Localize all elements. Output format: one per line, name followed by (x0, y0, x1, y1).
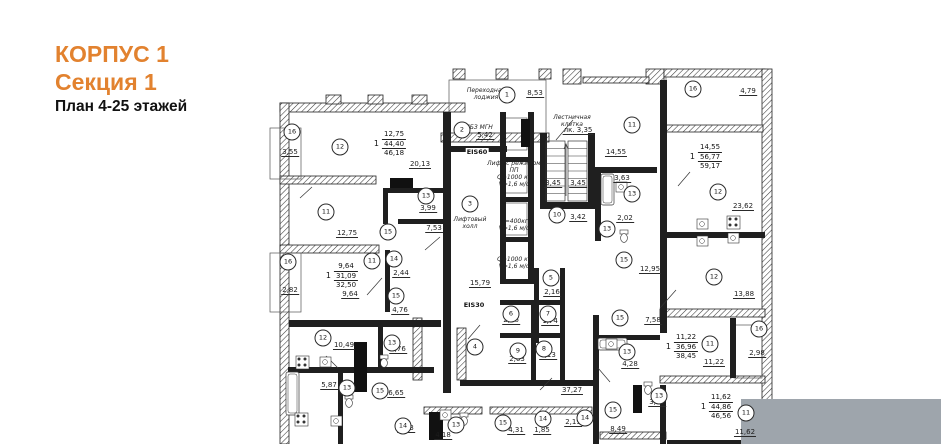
apartment-rooms-count: 1 (690, 152, 695, 161)
stove-burner (297, 415, 300, 418)
dimension-label: 13,88 (733, 290, 755, 299)
apartment-area-value: 11,62 (709, 393, 733, 403)
apartment-area-value: 38,45 (674, 352, 698, 361)
shaft-block (354, 342, 367, 392)
room-marker: 2 (454, 122, 471, 139)
exterior-wall (762, 69, 772, 444)
apartment-area-value: 46,18 (382, 149, 406, 158)
dimension-label: 37,27 (561, 386, 583, 395)
sink-icon (728, 233, 739, 243)
apartment-area-value: 14,55 (698, 143, 722, 153)
dimension-label: 7,53 (425, 224, 443, 233)
sink-icon (697, 236, 708, 246)
stove-burner (735, 224, 738, 227)
room-marker: 13 (624, 186, 641, 203)
apartment-area-value: 59,17 (698, 162, 722, 171)
dimension-label: 5,42 (476, 131, 494, 140)
room-marker: 13 (418, 188, 435, 205)
room-marker: 13 (651, 388, 668, 405)
gray-mask-overlay (741, 399, 941, 444)
sink-icon (331, 416, 342, 426)
exterior-wall (457, 328, 466, 380)
exterior-wall (660, 309, 765, 317)
apartment-area-value: 31,09 (334, 272, 358, 282)
stove-burner (303, 421, 306, 424)
room-marker: 6 (503, 306, 520, 323)
dimension-label: 11,22 (703, 358, 725, 367)
dimension-label: 3,45 (544, 179, 562, 188)
dimension-label: 8,49 (609, 425, 627, 434)
stove-burner (304, 358, 307, 361)
stove-burner (729, 218, 732, 221)
interior-wall (500, 279, 534, 284)
dimension-label: 4,79 (739, 87, 757, 96)
dimension-label: 12,75 (336, 229, 358, 238)
dimension-label: 2,82 (281, 286, 299, 295)
apartment-area-value: 44,86 (709, 403, 733, 413)
apartment-areas: 11,6244,8646,56 (709, 393, 733, 421)
exterior-wall (539, 69, 551, 79)
room-marker: 11 (702, 336, 719, 353)
apartment-area-stack: 111,6244,8646,56 (701, 393, 733, 421)
dimension-label: 3,55 (281, 148, 299, 157)
interior-wall (666, 232, 765, 238)
exterior-wall (664, 69, 765, 77)
apartment-areas: 12,7544,4046,18 (382, 130, 406, 158)
apartment-areas: 9,6431,0932,50 (334, 262, 358, 290)
apartment-area-stack: 19,6431,0932,50 (326, 262, 358, 290)
apartment-area-value: 12,75 (382, 130, 406, 140)
apartment-area-stack: 111,2236,9638,45 (666, 333, 698, 361)
dimension-label: 15,79 (469, 279, 491, 288)
room-marker: 3 (462, 196, 479, 213)
interior-wall (730, 318, 736, 378)
toilet-bowl (346, 399, 353, 408)
room-marker: 12 (315, 330, 332, 347)
interior-wall (383, 188, 388, 224)
dimension-label: 3,45 (569, 179, 587, 188)
apartment-areas: 14,5556,7759,17 (698, 143, 722, 171)
apartment-areas: 11,2236,9638,45 (674, 333, 698, 361)
interior-wall (593, 315, 599, 444)
room-marker: 11 (318, 204, 335, 221)
exterior-wall (496, 69, 508, 79)
room-marker: 15 (612, 310, 629, 327)
room-marker: 1 (499, 87, 516, 104)
room-marker: 16 (685, 81, 702, 98)
room-marker: 14 (386, 251, 403, 268)
exterior-wall (583, 77, 649, 83)
room-marker: 10 (549, 207, 566, 224)
plan-label: Q=1000 кг V=1,6 м/с (497, 256, 531, 270)
apartment-rooms-count: 1 (701, 402, 706, 411)
door-leaf-line (598, 368, 610, 382)
room-marker: 15 (388, 288, 405, 305)
stove-burner (304, 364, 307, 367)
plan-label: Лифтовый холл (454, 216, 487, 230)
interior-wall (560, 268, 565, 380)
room-marker: 7 (540, 306, 557, 323)
apartment-area-value: 11,22 (674, 333, 698, 343)
room-marker: 12 (332, 139, 349, 156)
exterior-wall (412, 95, 427, 104)
apartment-area-stack: 114,5556,7759,17 (690, 143, 722, 171)
door-leaf-line (367, 278, 382, 295)
door-leaf-line (425, 237, 440, 250)
room-marker: 15 (372, 383, 389, 400)
room-marker: 15 (605, 402, 622, 419)
dimension-label: 14,55 (605, 148, 627, 157)
plan-label: Q=400кг V=1,6 м/с (499, 218, 529, 232)
balcony-outline (666, 77, 762, 125)
room-marker: 8 (536, 341, 553, 358)
room-marker: 14 (577, 410, 594, 427)
toilet-bowl (381, 359, 388, 368)
apartment-area-value: 32,50 (334, 281, 358, 290)
plan-label: Лестничная клетка (553, 114, 591, 128)
room-marker: 4 (467, 339, 484, 356)
floor-plan-drawing: 3,5520,135,428,53лк. 3,353,453,4514,553,… (0, 0, 941, 444)
exterior-wall (326, 95, 341, 104)
dimension-label: 7,58 (644, 316, 662, 325)
toilet-bowl (621, 234, 628, 243)
exterior-wall (280, 245, 379, 253)
stove-burner (298, 364, 301, 367)
dimension-label: 9,64 (341, 290, 359, 299)
dimension-label: 4,76 (391, 306, 409, 315)
sink-icon (697, 219, 708, 229)
door-leaf-line (678, 172, 690, 186)
dimension-label: 6,65 (387, 389, 405, 398)
room-marker: 15 (380, 224, 397, 241)
sink-icon (606, 339, 617, 349)
dimension-label: 12,95 (639, 265, 661, 274)
dimension-label: 2,44 (392, 269, 410, 278)
room-marker: 11 (624, 117, 641, 134)
dimension-label: 5,87 (320, 381, 338, 390)
room-marker: 12 (706, 269, 723, 286)
dimension-label: 10,49 (333, 341, 355, 350)
room-marker: 16 (751, 321, 768, 338)
stove-burner (297, 421, 300, 424)
room-marker: 13 (619, 344, 636, 361)
sink-icon (320, 357, 331, 367)
fire-rating-label: EIS60 (466, 148, 489, 156)
door-leaf-line (300, 187, 312, 198)
apartment-rooms-count: 1 (666, 342, 671, 351)
floor-plan-page: КОРПУС 1 Секция 1 План 4-25 этажей 3,552… (0, 0, 941, 444)
room-marker: 13 (384, 335, 401, 352)
interior-wall (443, 112, 451, 393)
dimension-label: 8,53 (526, 89, 544, 98)
plan-label: Лифт с режимом ПП Q=1000 кг V=1,6 м/с (487, 160, 541, 188)
interior-wall (289, 320, 441, 327)
room-marker: 13 (448, 417, 465, 434)
dimension-label: 2,02 (616, 214, 634, 223)
room-marker: 5 (543, 270, 560, 287)
room-marker: 13 (599, 221, 616, 238)
room-marker: 15 (495, 415, 512, 432)
room-marker: 14 (535, 411, 552, 428)
exterior-wall (280, 176, 376, 184)
shaft-block (521, 119, 530, 147)
shaft-block (390, 178, 413, 188)
room-marker: 11 (364, 253, 381, 270)
apartment-area-value: 56,77 (698, 153, 722, 163)
shaft-block (633, 385, 642, 413)
stove-burner (729, 224, 732, 227)
interior-wall (500, 333, 560, 338)
dimension-label: 3,99 (419, 204, 437, 213)
door-leaf-line (468, 325, 480, 339)
apartment-area-value: 44,40 (382, 140, 406, 150)
interior-wall (531, 300, 536, 380)
interior-wall (500, 300, 560, 305)
exterior-wall (664, 125, 763, 132)
room-marker: 15 (616, 252, 633, 269)
interior-wall (588, 133, 595, 209)
room-marker: 14 (395, 418, 412, 435)
room-marker: 11 (738, 405, 755, 422)
apartment-rooms-count: 1 (326, 271, 331, 280)
apartment-area-stack: 112,7544,4046,18 (374, 130, 406, 158)
exterior-wall (660, 376, 765, 383)
stove-burner (303, 415, 306, 418)
dimension-label: 3,63 (613, 174, 631, 183)
stove-burner (298, 358, 301, 361)
dimension-label: 3,42 (569, 213, 587, 222)
room-marker: 9 (510, 343, 527, 360)
room-marker: 16 (284, 124, 301, 141)
apartment-area-value: 36,96 (674, 343, 698, 353)
room-marker: 13 (339, 380, 356, 397)
dimension-label: 2,98 (748, 349, 766, 358)
exterior-wall (563, 69, 581, 84)
interior-wall (660, 80, 667, 333)
interior-wall (500, 237, 534, 242)
exterior-wall (453, 69, 465, 79)
interior-wall (540, 202, 595, 209)
apartment-area-value: 46,56 (709, 412, 733, 421)
fire-rating-label: EIS30 (463, 301, 486, 309)
room-marker: 16 (280, 254, 297, 271)
dimension-label: 4,18 (434, 431, 452, 440)
apartment-area-value: 9,64 (334, 262, 358, 272)
interior-wall (595, 167, 657, 173)
room-marker: 12 (710, 184, 727, 201)
dimension-label: 11,62 (734, 428, 756, 437)
dimension-label: 20,13 (409, 160, 431, 169)
interior-wall (500, 197, 534, 202)
dimension-label: 23,62 (732, 202, 754, 211)
dimension-label: 2,16 (543, 288, 561, 297)
stove-burner (735, 218, 738, 221)
exterior-wall (368, 95, 383, 104)
dimension-label: 4,28 (621, 360, 639, 369)
apartment-rooms-count: 1 (374, 139, 379, 148)
